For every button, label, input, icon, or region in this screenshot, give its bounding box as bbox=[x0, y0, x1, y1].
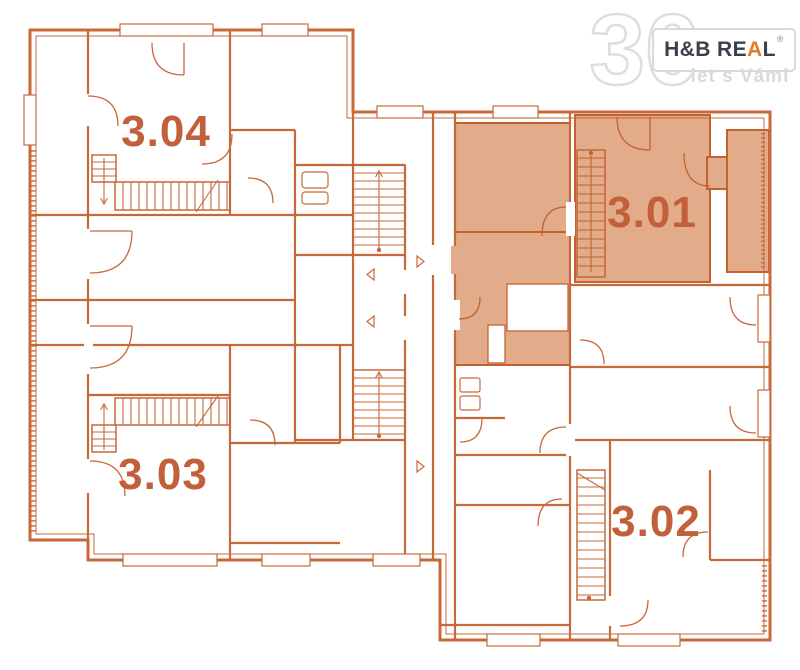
staircase-central-lower bbox=[353, 370, 405, 440]
unit-label-303: 3.03 bbox=[118, 450, 208, 499]
registered-mark: ® bbox=[777, 34, 784, 44]
logo-brand-accent: A bbox=[747, 38, 763, 62]
logo-brand-suffix: L bbox=[763, 38, 776, 62]
logo-brand-prefix: H&B RE bbox=[664, 38, 747, 62]
unit-label-304: 3.04 bbox=[121, 107, 211, 156]
fixtures bbox=[302, 172, 480, 410]
unit-label-302: 3.02 bbox=[611, 497, 701, 546]
unit-label-301: 3.01 bbox=[607, 188, 697, 237]
logo: 30 H&B REAL® let s Vámi bbox=[582, 4, 797, 96]
room-301-a bbox=[455, 123, 570, 232]
unit-301-entrance bbox=[451, 246, 460, 274]
staircase-303 bbox=[92, 396, 230, 452]
staircase-302 bbox=[577, 470, 605, 600]
staircase-central-upper bbox=[353, 165, 405, 255]
floor-plan-page: 3.04 3.03 3.01 3.02 30 H&B REAL® let s V… bbox=[0, 0, 800, 670]
room-301-passage bbox=[707, 157, 729, 189]
logo-tagline: let s Vámi bbox=[686, 66, 794, 88]
staircase-301 bbox=[577, 150, 605, 277]
